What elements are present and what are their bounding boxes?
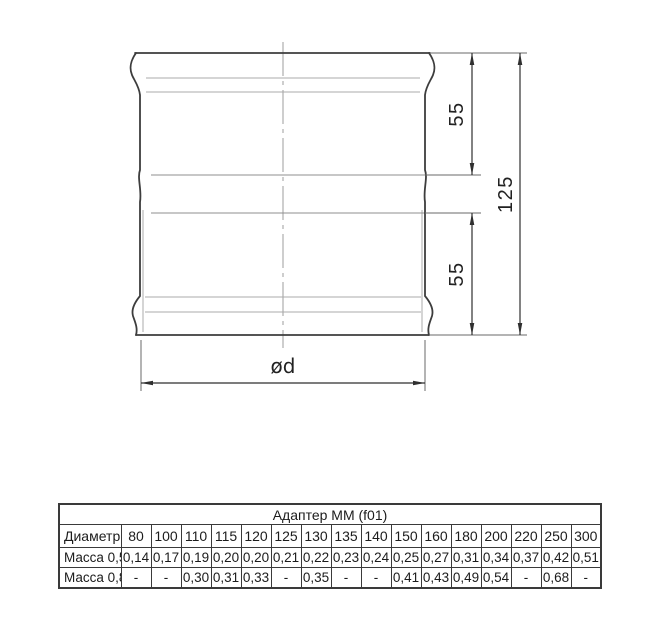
mass-05-cell: 0,24 [361, 548, 391, 568]
mass-08-cell: - [361, 568, 391, 589]
mass-08-cell: 0,43 [421, 568, 451, 589]
row-label-mass-05: Масса 0,5 [59, 548, 121, 568]
mass-08-cell: 0,30 [181, 568, 211, 589]
mass-08-cell: 0,33 [241, 568, 271, 589]
diameter-cell: 120 [241, 525, 271, 548]
mass-05-cell: 0,42 [541, 548, 571, 568]
mass-05-cell: 0,51 [571, 548, 601, 568]
mass-08-cell: 0,41 [391, 568, 421, 589]
mass-05-cell: 0,22 [301, 548, 331, 568]
mass-05-cell: 0,19 [181, 548, 211, 568]
mass-08-cell: 0,49 [451, 568, 481, 589]
diameter-cell: 125 [271, 525, 301, 548]
mass-08-cell: - [121, 568, 151, 589]
mass-05-cell: 0,31 [451, 548, 481, 568]
diameter-cell: 115 [211, 525, 241, 548]
mass-08-cell: - [151, 568, 181, 589]
diameter-cell: 220 [511, 525, 541, 548]
page: 55 55 125 ød Адаптер ММ (f01) Диаметр 80… [0, 0, 660, 640]
mass-05-cell: 0,37 [511, 548, 541, 568]
mass-05-cell: 0,20 [211, 548, 241, 568]
diameter-cell: 100 [151, 525, 181, 548]
mass-08-cell: 0,31 [211, 568, 241, 589]
outline-left-edge [131, 53, 141, 335]
diameter-cell: 140 [361, 525, 391, 548]
row-diameter: Диаметр 80 100 110 115 120 125 130 135 1… [59, 525, 601, 548]
diameter-cell: 180 [451, 525, 481, 548]
dimension-label-diameter: ød [271, 354, 296, 378]
mass-05-cell: 0,34 [481, 548, 511, 568]
diameter-cell: 135 [331, 525, 361, 548]
row-mass-05: Масса 0,5 0,14 0,17 0,19 0,20 0,20 0,21 … [59, 548, 601, 568]
outline-right-edge [425, 53, 435, 335]
row-mass-08: Масса 0,8 - - 0,30 0,31 0,33 - 0,35 - - … [59, 568, 601, 589]
mass-05-cell: 0,17 [151, 548, 181, 568]
diameter-cell: 130 [301, 525, 331, 548]
row-label-mass-08: Масса 0,8 [59, 568, 121, 589]
mass-08-cell: 0,35 [301, 568, 331, 589]
diameter-cell: 110 [181, 525, 211, 548]
table-title-row: Адаптер ММ (f01) [59, 504, 601, 525]
extension-lines [141, 53, 527, 391]
diameter-cell: 300 [571, 525, 601, 548]
row-label-diameter: Диаметр [59, 525, 121, 548]
mass-05-cell: 0,27 [421, 548, 451, 568]
adapter-technical-drawing: 55 55 125 ød [0, 0, 660, 470]
mass-05-cell: 0,20 [241, 548, 271, 568]
mass-08-cell: 0,68 [541, 568, 571, 589]
mass-08-cell: - [571, 568, 601, 589]
diameter-cell: 160 [421, 525, 451, 548]
mass-08-cell: 0,54 [481, 568, 511, 589]
mass-05-cell: 0,14 [121, 548, 151, 568]
dimension-label-lower-55: 55 [446, 261, 468, 286]
dimension-label-upper-55: 55 [446, 101, 468, 126]
mass-08-cell: - [511, 568, 541, 589]
diameter-cell: 80 [121, 525, 151, 548]
table-title: Адаптер ММ (f01) [59, 504, 601, 525]
diameter-cell: 200 [481, 525, 511, 548]
joint-seam-lines [151, 175, 425, 213]
diameter-cell: 150 [391, 525, 421, 548]
dimension-label-total-125: 125 [495, 175, 517, 213]
mass-08-cell: - [271, 568, 301, 589]
diameter-cell: 250 [541, 525, 571, 548]
mass-05-cell: 0,25 [391, 548, 421, 568]
mass-05-cell: 0,21 [271, 548, 301, 568]
spec-table: Адаптер ММ (f01) Диаметр 80 100 110 115 … [58, 503, 602, 589]
mass-08-cell: - [331, 568, 361, 589]
mass-05-cell: 0,23 [331, 548, 361, 568]
